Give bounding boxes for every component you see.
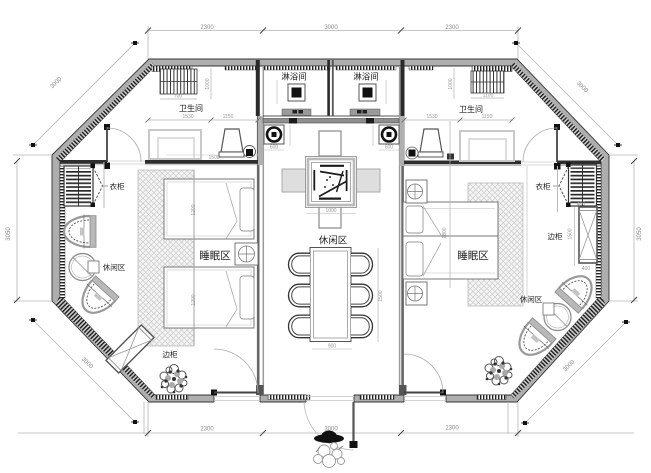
svg-text:1150: 1150 <box>482 114 493 120</box>
svg-text:900: 900 <box>328 344 337 350</box>
svg-text:边柜: 边柜 <box>163 349 178 359</box>
svg-text:卫生间: 卫生间 <box>179 103 203 113</box>
svg-text:1530: 1530 <box>426 114 437 120</box>
svg-text:2300: 2300 <box>200 25 214 31</box>
svg-text:3000: 3000 <box>575 80 589 94</box>
svg-text:600: 600 <box>385 145 394 151</box>
svg-text:衣柜: 衣柜 <box>536 181 551 191</box>
svg-text:3000: 3000 <box>49 76 63 90</box>
svg-text:1500: 1500 <box>208 155 219 161</box>
svg-text:3050: 3050 <box>637 227 643 241</box>
svg-text:休闲区: 休闲区 <box>319 235 348 247</box>
svg-text:1150: 1150 <box>223 114 234 120</box>
svg-text:2300: 2300 <box>445 25 459 31</box>
svg-text:2300: 2300 <box>200 427 214 433</box>
svg-text:睡眠区: 睡眠区 <box>199 249 231 262</box>
svg-text:3050: 3050 <box>6 227 12 241</box>
svg-text:1800: 1800 <box>442 227 448 238</box>
svg-text:1000: 1000 <box>325 208 336 214</box>
svg-text:400: 400 <box>582 266 591 272</box>
svg-text:1500: 1500 <box>378 290 384 301</box>
svg-text:边柜: 边柜 <box>548 231 563 241</box>
svg-text:1200: 1200 <box>191 204 197 215</box>
svg-text:700: 700 <box>174 94 183 100</box>
svg-text:1000: 1000 <box>448 78 454 89</box>
svg-text:卫生间: 卫生间 <box>459 104 483 114</box>
svg-text:休闲区: 休闲区 <box>520 294 543 304</box>
svg-text:睡眠区: 睡眠区 <box>457 249 489 262</box>
svg-text:2300: 2300 <box>445 426 459 432</box>
svg-text:衣柜: 衣柜 <box>110 181 125 191</box>
svg-text:1000: 1000 <box>205 78 211 89</box>
svg-text:3000: 3000 <box>562 359 576 373</box>
svg-text:1530: 1530 <box>182 114 193 120</box>
svg-text:400: 400 <box>577 202 586 208</box>
svg-text:淋浴间: 淋浴间 <box>281 72 307 82</box>
svg-text:1100: 1100 <box>483 93 494 99</box>
svg-text:淋浴间: 淋浴间 <box>353 72 379 82</box>
svg-text:3000: 3000 <box>324 25 338 31</box>
svg-text:1500: 1500 <box>568 228 574 239</box>
svg-text:1200: 1200 <box>191 294 197 305</box>
svg-text:600: 600 <box>270 145 279 151</box>
svg-text:休闲区: 休闲区 <box>103 262 126 272</box>
